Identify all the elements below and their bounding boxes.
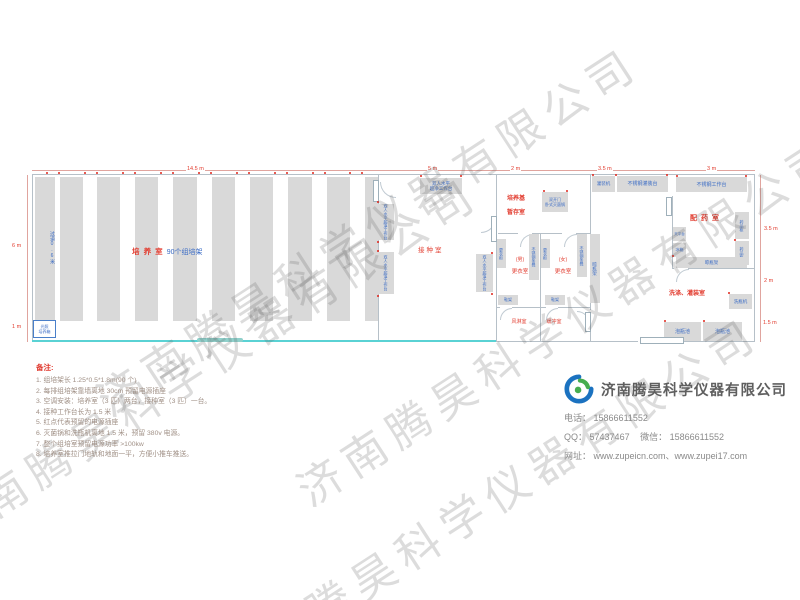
culture-rack-bar [250,177,273,321]
room-label-air-shower: 风淋室 [501,318,537,325]
filling-machine: 灌装机 [592,176,615,192]
sliding-door [197,338,243,343]
culture-rack-bar [327,177,350,321]
company-web-row: 网址： www.zupeicn.com、www.zupei17.com [564,449,787,462]
notes-title: 备注: [36,362,211,373]
note-item: 3. 空调安装：培养室（3 匹）两台，接种室（3 匹）一台。 [36,397,211,408]
room-label-locker-female: (女) 更衣室 [546,256,580,275]
dim-label: 3 m [706,166,717,172]
qq-value: 57437467 [590,432,630,442]
room-label-buffer: 缓冲室 [536,318,572,325]
culture-rack-bar [60,177,83,321]
room-label-inoculation: 接种室 [418,244,444,254]
locker-m-l1: (男) [502,256,538,263]
sterilizer: 双开门 卧式灭菌锅 [542,192,568,212]
shoe-rack: 鞋架 [498,295,518,305]
note-item: 6. 灭菌锅和洗瓶机离地 1.5 米，预留 380v 电源。 [36,429,211,440]
lighted-incubator: 光照 培养箱 [33,320,56,338]
culture-rack-bar [288,177,312,321]
web-value: www.zupeicn.com、www.zupei17.com [594,451,748,461]
culture-room-south-wall [32,340,496,342]
shoe-rack: 鞋架 [545,295,565,305]
culture-rack-bar [212,177,235,321]
dimension-line-top [32,170,755,171]
stainless-filling-table: 不锈钢灌装台 [617,176,668,192]
note-item: 1. 组培架长 1.25*0.5*1.8m(90 个) [36,376,211,387]
dim-label: 1 m [11,324,22,330]
room-label-medium-storage: 培养基 暂存室 [494,193,538,216]
wall [32,174,33,342]
company-block: 济南腾昊科学仪器有限公司 电话： 15866611552 QQ： 5743746… [564,374,787,462]
company-logo-icon [564,374,594,404]
door-arc [380,182,396,198]
door-leaf [640,337,684,344]
bench-label-l2: 超净工作台 [430,186,453,192]
door-arc [676,269,689,282]
note-item: 7. 整个组培室预留电源功率 >100kw [36,440,211,451]
company-header: 济南腾昊科学仪器有限公司 [564,374,787,404]
bottle-soaking-pool: 泡瓶池 [703,322,742,341]
room-label-washing: 洗涤、灌装室 [655,288,719,297]
dim-label: 1.5 m [762,320,778,326]
aisle-label: 过道0.6米 [47,231,57,281]
note-item: 8. 培养室推拉门地轨和地面一平，方便小推车推送。 [36,450,211,461]
door-leaf [373,180,379,202]
door-leaf [585,312,591,332]
note-item: 2. 每排组培架靠墙离地 30cm 预留电源插座 [36,387,211,398]
dimension-line-left [27,175,28,342]
dim-label: 14.5 m [186,166,205,172]
wall [32,174,755,175]
power-outlet-dot [491,293,493,295]
dim-label: 2 m [510,166,521,172]
web-label: 网址： [564,451,591,461]
medicine-cabinet: 药品柜 [735,212,749,239]
bottle-drying-rack: 晾瓶架 [676,257,747,268]
dim-label: 5 m [427,166,438,172]
note-item: 5. 红点代表预留的电源插座 [36,418,211,429]
wall [496,341,755,342]
dimension-line-right [760,175,761,342]
floor-plan: 14.5 m 5 m 2 m 3.5 m 3 m 6 m 1 m 3.5 m 2… [0,0,800,600]
dim-label: 6 m [11,243,22,249]
qq-label: QQ： [564,432,587,442]
room-label-locker-male: (男) 更衣室 [502,256,538,275]
locker-f-l2: 更衣室 [546,267,580,275]
wall [754,174,755,342]
locker-f-l1: (女) [546,256,580,263]
fridge: 冰箱 [673,243,686,257]
notes-block: 备注: 1. 组培架长 1.25*0.5*1.8m(90 个) 2. 每排组培架… [36,362,211,461]
medium-label-l1: 培养基 [494,193,538,202]
phone-value: 15866611552 [594,413,648,423]
company-phone-row: 电话： 15866611552 [564,411,787,424]
locker-m-l2: 更衣室 [502,267,538,275]
laminar-flow-bench: 双人水平超净工作台 [377,252,394,294]
door-leaf [666,197,672,216]
room-label-dispensing: 配 药 室 [690,213,720,223]
dim-label: 3.5 m [763,226,779,232]
wechat-label: 微信： [640,432,667,442]
laminar-flow-bench: 双人水平超净工作台 [377,204,394,240]
sterilizer-label-l2: 卧式灭菌锅 [545,202,565,207]
door-arc [564,234,577,247]
company-name: 济南腾昊科学仪器有限公司 [601,379,787,400]
dim-label: 2 m [763,278,774,284]
stainless-worktable: 不锈钢工作台 [676,177,747,192]
floor-plan-page: 济南腾昊科学仪器有限公司 济南腾昊科学仪器有限公司 济南腾昊科学仪器有限公司 济… [0,0,800,600]
laminar-flow-bench: 双人水平 超净工作台 [420,178,462,194]
wechat-value: 15866611552 [670,432,724,442]
culture-name: 培 养 室 [132,247,164,256]
phone-label: 电话： [564,413,591,423]
note-item: 4. 接种工作台长为 1.5 米 [36,408,211,419]
culture-rack-bar [97,177,120,321]
culture-rack-count: 90个组培架 [167,249,203,256]
laminar-flow-bench: 双人水平超净工作台 [476,254,493,292]
bottle-drying-rack: 晾瓶架 [590,234,600,303]
bottle-washer: 洗瓶机 [729,294,752,309]
incubator-label-l2: 培养箱 [34,329,55,334]
door-leaf [491,216,497,242]
balance-table: 天平台 [673,227,686,241]
dim-label: 3.5 m [597,166,613,172]
company-qq-row: QQ： 57437467 微信： 15866611552 [564,430,787,443]
room-label-culture: 培 养 室 90个组培架 [132,246,203,257]
medium-label-l2: 暂存室 [494,207,538,216]
